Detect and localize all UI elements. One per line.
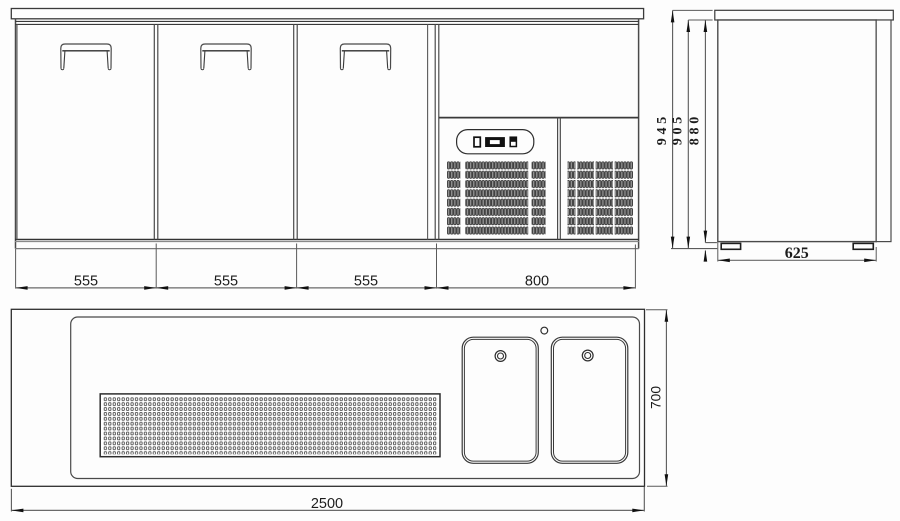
svg-text:555: 555 bbox=[74, 274, 98, 290]
svg-text:625: 625 bbox=[785, 245, 809, 262]
svg-text:945: 945 bbox=[655, 117, 670, 146]
svg-text:2500: 2500 bbox=[311, 496, 343, 512]
svg-text:800: 800 bbox=[525, 274, 549, 290]
svg-text:555: 555 bbox=[354, 274, 378, 290]
svg-text:700: 700 bbox=[649, 386, 664, 409]
svg-text:880: 880 bbox=[688, 117, 703, 146]
svg-text:555: 555 bbox=[214, 274, 238, 290]
svg-text:905: 905 bbox=[671, 117, 686, 146]
